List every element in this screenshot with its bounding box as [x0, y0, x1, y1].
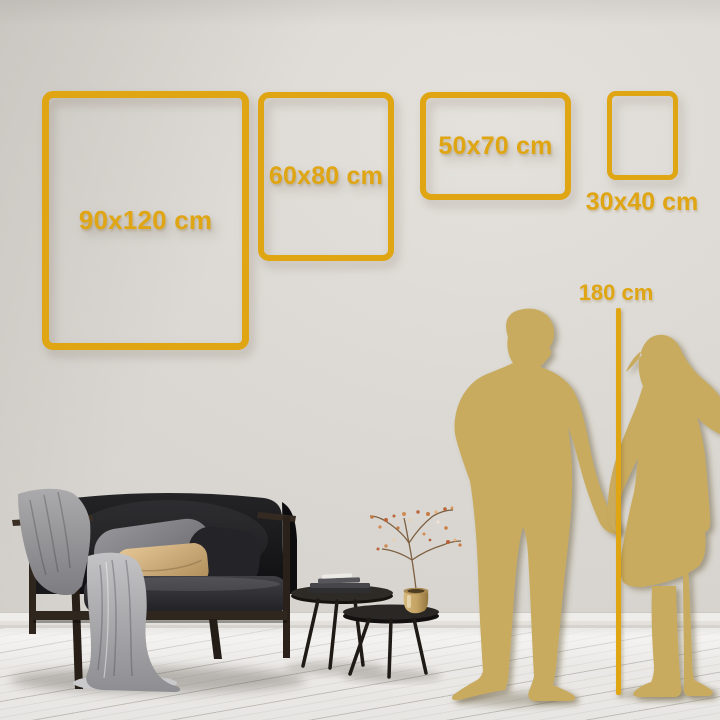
size-frame-label-30x40: 30x40 cm — [577, 188, 707, 217]
brass-vase — [404, 588, 429, 613]
woman-silhouette — [608, 335, 720, 697]
size-frame-label: 50x70 cm — [438, 132, 552, 161]
size-frame-90x120: 90x120 cm — [42, 91, 249, 350]
size-frame-50x70: 50x70 cm — [420, 92, 571, 200]
size-guide-scene: 90x120 cm 60x80 cm 50x70 cm 30x40 cm 180… — [0, 0, 720, 720]
sofa — [0, 478, 312, 720]
height-reference-line — [616, 308, 621, 695]
size-frame-label: 90x120 cm — [79, 205, 212, 236]
man-silhouette — [452, 309, 621, 701]
coffee-table-small — [291, 585, 393, 668]
couple-silhouettes — [440, 300, 720, 720]
books-stack — [308, 573, 372, 593]
size-frame-label: 60x80 cm — [269, 162, 383, 191]
size-frame-30x40 — [607, 91, 678, 180]
size-frame-60x80: 60x80 cm — [258, 92, 394, 261]
throw-blanket-arm — [18, 489, 90, 595]
